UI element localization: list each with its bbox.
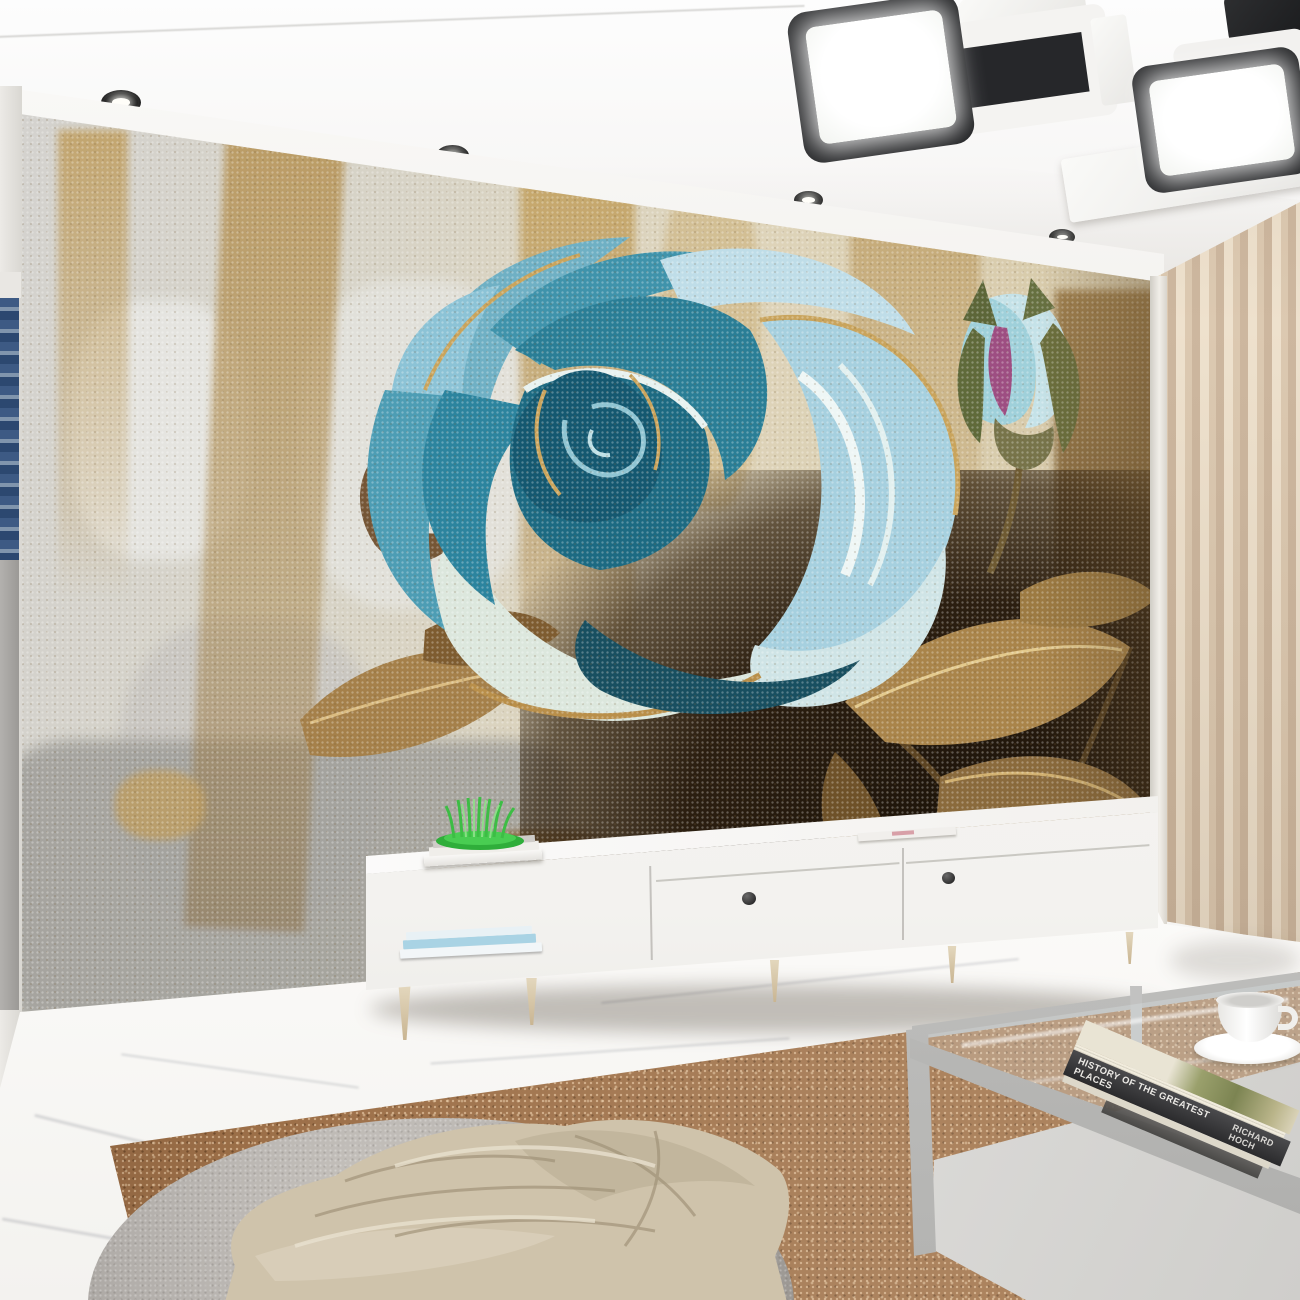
teacup-rim <box>1216 992 1284 1008</box>
recessed-spotlight-4 <box>1049 229 1075 245</box>
spotlight-bulb <box>112 98 131 107</box>
curtain-floor-shadow <box>1170 940 1300 980</box>
grass-plant <box>424 792 536 850</box>
recessed-spotlight-1 <box>101 90 141 115</box>
drawer-knob-left <box>742 892 756 905</box>
drawer-knob-right <box>942 872 955 884</box>
recessed-spotlight-2 <box>436 145 469 166</box>
recessed-spotlight-3 <box>794 191 823 209</box>
drawer-gap-line <box>902 848 904 940</box>
spotlight-bulb <box>1057 235 1068 240</box>
lamp-led-left <box>804 9 957 145</box>
left-shelf-edge <box>0 272 21 298</box>
spotlight-bulb <box>802 197 815 203</box>
left-hallway-wall <box>0 560 19 1010</box>
living-room-photo: HISTORY OF THE GREATEST PLACES RICHARD H… <box>0 0 1300 1300</box>
spotlight-bulb <box>445 152 460 159</box>
blue-striped-textile <box>0 298 19 560</box>
lamp-led-right <box>1148 63 1296 177</box>
knit-throw <box>195 1096 795 1300</box>
